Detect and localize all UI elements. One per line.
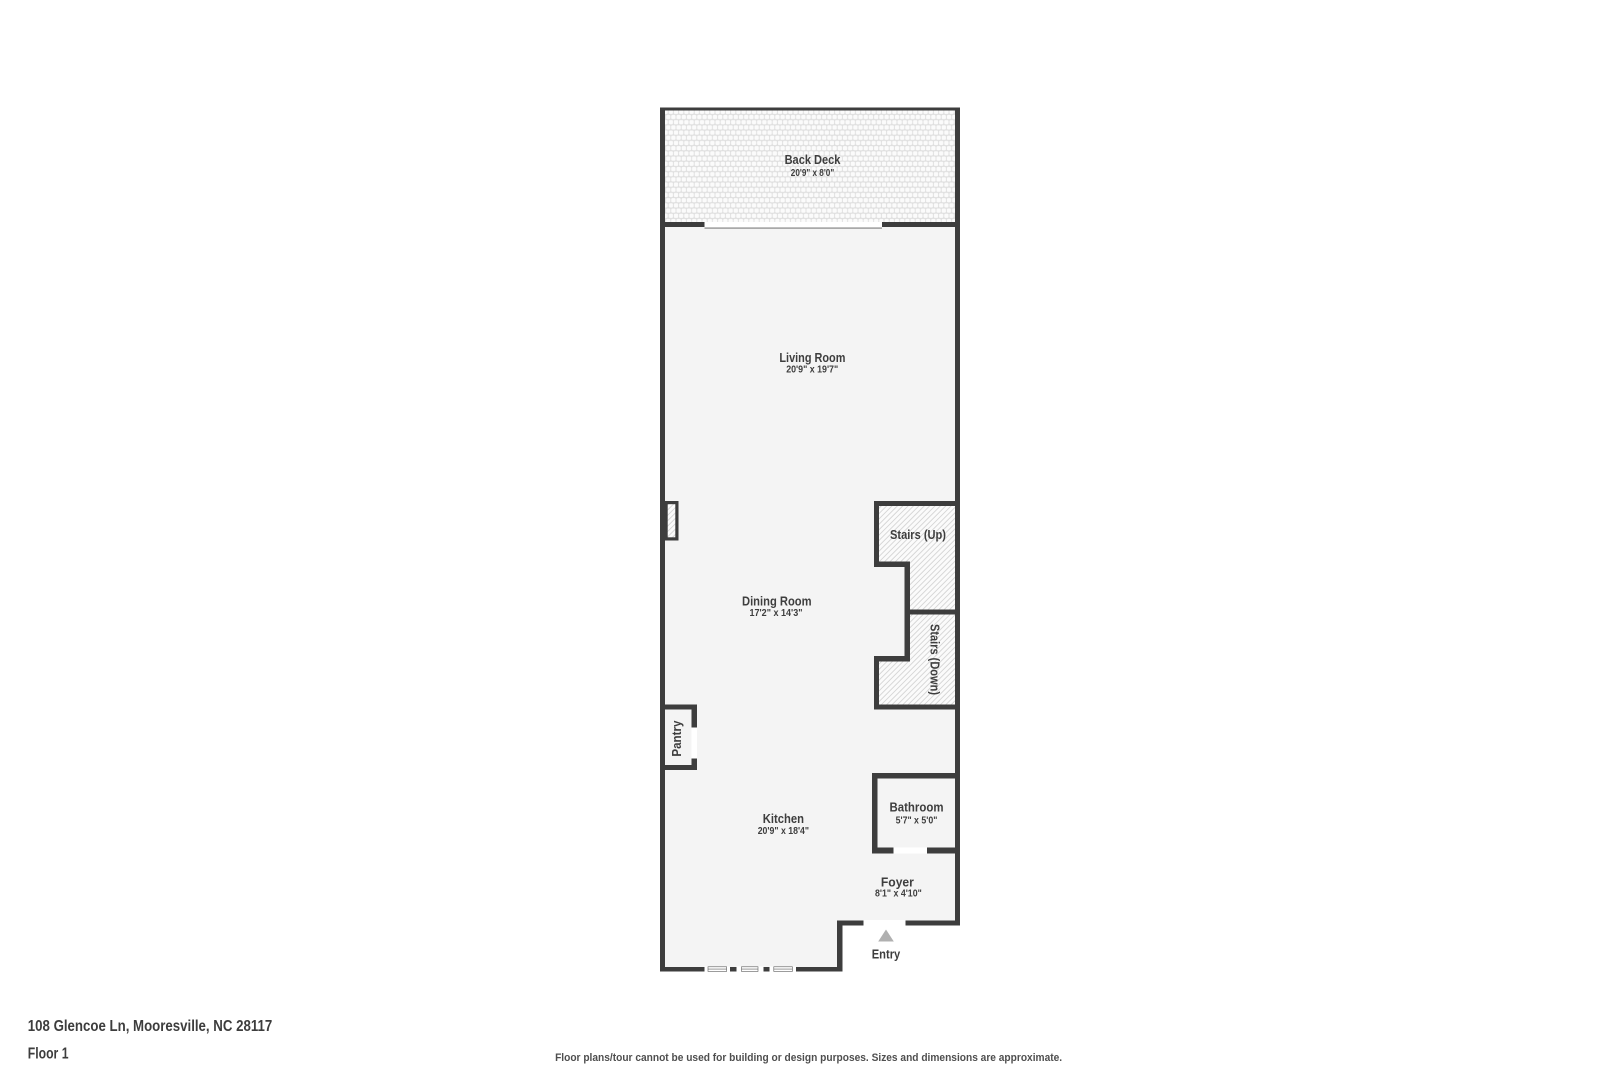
svg-text:20'9" x 18'4": 20'9" x 18'4" [758,826,809,837]
svg-text:Floor 1: Floor 1 [28,1046,69,1063]
svg-text:Floor plans/tour cannot be use: Floor plans/tour cannot be used for buil… [555,1052,1062,1064]
svg-text:Pantry: Pantry [669,720,684,757]
svg-text:17'2" x 14'3": 17'2" x 14'3" [750,608,803,619]
svg-text:Kitchen: Kitchen [763,811,804,826]
svg-text:Entry: Entry [872,947,901,962]
svg-text:8'1" x 4'10": 8'1" x 4'10" [875,889,922,900]
svg-text:Stairs (Up): Stairs (Up) [890,527,946,542]
svg-text:5'7" x 5'0": 5'7" x 5'0" [896,815,938,826]
svg-text:Bathroom: Bathroom [890,799,944,814]
svg-text:108 Glencoe Ln, Mooresville, N: 108 Glencoe Ln, Mooresville, NC 28117 [28,1018,272,1035]
svg-text:Living Room: Living Room [779,350,845,365]
svg-text:Back Deck: Back Deck [785,152,842,167]
svg-text:Stairs (Down): Stairs (Down) [927,624,942,695]
svg-text:Dining Room: Dining Room [742,594,812,609]
svg-text:Foyer: Foyer [881,874,914,889]
svg-text:20'9" x 19'7": 20'9" x 19'7" [786,365,838,376]
svg-text:20'9" x 8'0": 20'9" x 8'0" [791,168,834,179]
